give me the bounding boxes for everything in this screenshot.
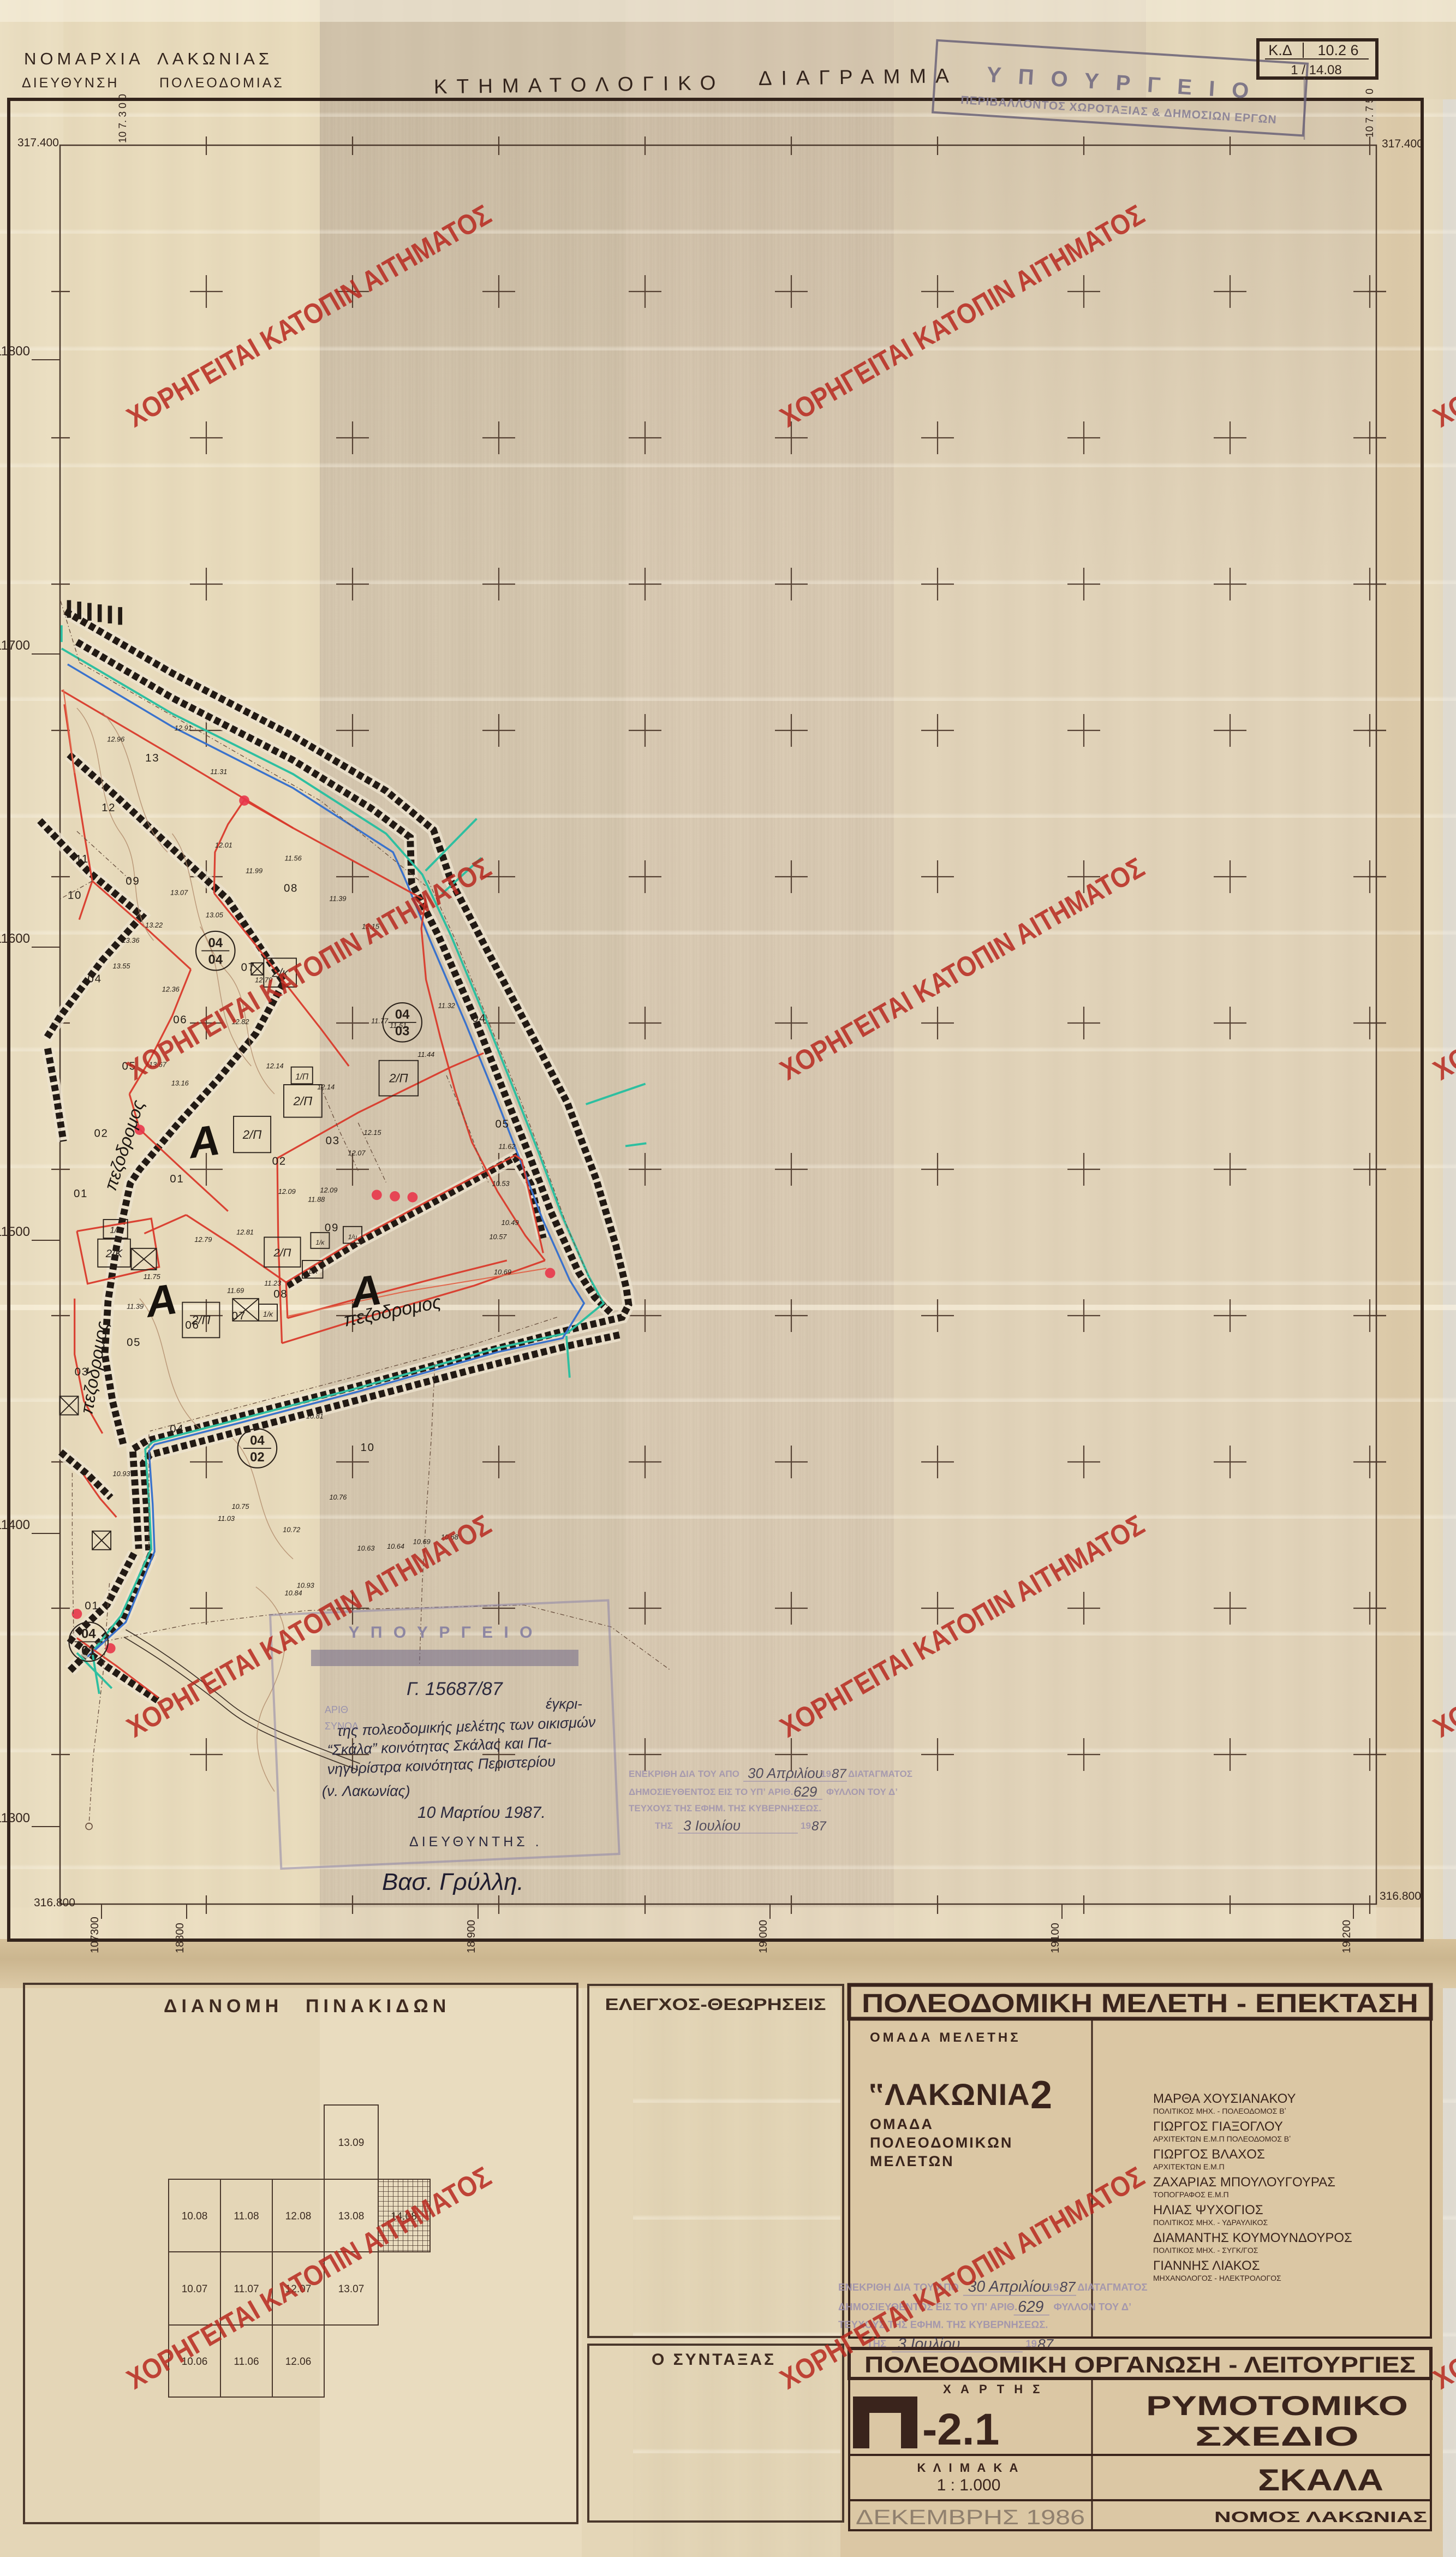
svg-text:ΕΝΕΚΡΙΘΗ ΔΙΑ ΤΟΥ ΑΠΟ: ΕΝΕΚΡΙΘΗ ΔΙΑ ΤΟΥ ΑΠΟ bbox=[629, 1769, 739, 1779]
svg-text:ΜΕΛΕΤΩΝ: ΜΕΛΕΤΩΝ bbox=[870, 2153, 954, 2169]
svg-text:ΠΟΛΙΤΙΚΟΣ ΜΗΧ. - ΣΥΓΚ/ΓΟΣ: ΠΟΛΙΤΙΚΟΣ ΜΗΧ. - ΣΥΓΚ/ΓΟΣ bbox=[1153, 2246, 1258, 2255]
svg-text:13.09: 13.09 bbox=[338, 2137, 365, 2149]
svg-text:11500: 11500 bbox=[0, 1224, 30, 1239]
svg-text:ΤΟΠΟΓΡΑΦΟΣ Ε.Μ.Π: ΤΟΠΟΓΡΑΦΟΣ Ε.Μ.Π bbox=[1153, 2190, 1229, 2199]
svg-text:10.2 6: 10.2 6 bbox=[1317, 42, 1358, 58]
svg-text:19: 19 bbox=[801, 1821, 811, 1831]
svg-text:10.75: 10.75 bbox=[232, 1502, 250, 1511]
svg-text:09: 09 bbox=[325, 1221, 339, 1234]
svg-text:ΑΡΙΘ: ΑΡΙΘ bbox=[325, 1704, 348, 1715]
svg-text:12.07: 12.07 bbox=[348, 1149, 366, 1157]
svg-text:87: 87 bbox=[811, 1819, 827, 1834]
svg-text:12.08: 12.08 bbox=[285, 2211, 312, 2222]
svg-text:12.09: 12.09 bbox=[278, 1187, 296, 1196]
svg-text:A: A bbox=[184, 1115, 223, 1167]
svg-text:13.07: 13.07 bbox=[170, 888, 188, 896]
svg-text:ΠΟΛΕΟΔΟΜΙΑΣ: ΠΟΛΕΟΔΟΜΙΑΣ bbox=[159, 75, 284, 91]
svg-text:ΓΙΩΡΓΟΣ ΒΛΑΧΟΣ: ΓΙΩΡΓΟΣ ΒΛΑΧΟΣ bbox=[1153, 2147, 1265, 2162]
svg-text:10.72: 10.72 bbox=[283, 1525, 300, 1533]
svg-text:08: 08 bbox=[284, 882, 298, 894]
svg-text:12.96: 12.96 bbox=[107, 735, 125, 743]
svg-text:19.200: 19.200 bbox=[1341, 1920, 1353, 1953]
svg-text:13: 13 bbox=[145, 752, 159, 764]
svg-text:Υ Π Ο Υ Ρ Γ Ε Ι Ο: Υ Π Ο Υ Ρ Γ Ε Ι Ο bbox=[349, 1624, 536, 1642]
svg-text:ΠΙΝΑΚΙΔΩΝ: ΠΙΝΑΚΙΔΩΝ bbox=[306, 1996, 450, 2017]
svg-text:3 Ιουλίου: 3 Ιουλίου bbox=[683, 1817, 741, 1834]
svg-text:11.51: 11.51 bbox=[390, 1021, 407, 1030]
svg-text:11.62: 11.62 bbox=[499, 1143, 516, 1151]
svg-text:01: 01 bbox=[170, 1173, 184, 1185]
svg-text:1/κ: 1/κ bbox=[110, 1226, 122, 1235]
svg-text:1/u: 1/u bbox=[348, 1233, 357, 1241]
svg-text:317.400: 317.400 bbox=[17, 136, 59, 149]
svg-text:07: 07 bbox=[232, 1310, 246, 1322]
svg-text:12.36: 12.36 bbox=[162, 985, 180, 994]
svg-text:10.08: 10.08 bbox=[182, 2211, 208, 2222]
svg-text:ΣΚΑΛΑ: ΣΚΑΛΑ bbox=[1258, 2463, 1383, 2497]
svg-text:10.63: 10.63 bbox=[357, 1544, 375, 1552]
svg-text:12.06: 12.06 bbox=[285, 2356, 312, 2368]
svg-text:ΛΑΚΩΝΙΑΣ: ΛΑΚΩΝΙΑΣ bbox=[157, 49, 273, 68]
svg-text:12.15: 12.15 bbox=[363, 1128, 381, 1137]
svg-text:10: 10 bbox=[361, 1441, 375, 1454]
svg-text:04: 04 bbox=[250, 1433, 265, 1448]
svg-text:10.76: 10.76 bbox=[329, 1493, 347, 1501]
svg-text:ΑΡΧΙΤΕΚΤΩΝ Ε.Μ.Π: ΑΡΧΙΤΕΚΤΩΝ Ε.Μ.Π bbox=[1153, 2162, 1225, 2171]
svg-text:της πολεοδομικής μελέτης των ο: της πολεοδομικής μελέτης των οικισμών bbox=[337, 1714, 596, 1739]
svg-text:08: 08 bbox=[273, 1288, 288, 1300]
svg-text:ΔΕΚΕΜΒΡΗΣ 1986: ΔΕΚΕΜΒΡΗΣ 1986 bbox=[856, 2506, 1085, 2529]
svg-text:11.23: 11.23 bbox=[264, 1279, 281, 1287]
svg-text:316.800: 316.800 bbox=[1380, 1890, 1421, 1902]
svg-text:13.05: 13.05 bbox=[206, 911, 224, 919]
svg-text:ΔΙΕΥΘΥΝΤΗΣ .: ΔΙΕΥΘΥΝΤΗΣ . bbox=[409, 1834, 542, 1850]
svg-text:10.53: 10.53 bbox=[492, 1180, 510, 1188]
svg-text:‟ΛΑΚΩΝΙΑ: ‟ΛΑΚΩΝΙΑ bbox=[869, 2077, 1030, 2112]
svg-text:13.55: 13.55 bbox=[113, 962, 131, 970]
svg-text:13.22: 13.22 bbox=[145, 921, 163, 929]
svg-text:04: 04 bbox=[170, 1423, 184, 1435]
svg-text:ΤΗΣ: ΤΗΣ bbox=[655, 1821, 673, 1831]
svg-text:107300: 107300 bbox=[89, 1917, 101, 1953]
svg-text:04: 04 bbox=[395, 1007, 410, 1022]
svg-text:02: 02 bbox=[272, 1155, 287, 1167]
svg-text:ΟΜΑΔΑ: ΟΜΑΔΑ bbox=[870, 2116, 934, 2132]
svg-text:11.88: 11.88 bbox=[308, 1196, 325, 1204]
svg-text:19.000: 19.000 bbox=[757, 1920, 769, 1953]
svg-text:04: 04 bbox=[208, 936, 223, 950]
svg-text:ΠΟΛΕΟΔΟΜΙΚΗ ΟΡΓΑΝΩΣΗ - ΛΕΙΤΟΥ: ΠΟΛΕΟΔΟΜΙΚΗ ΟΡΓΑΝΩΣΗ - ΛΕΙΤΟΥΡΓΙΕΣ bbox=[864, 2352, 1416, 2377]
svg-text:12.14: 12.14 bbox=[317, 1083, 335, 1091]
svg-text:2/Π: 2/Π bbox=[293, 1094, 313, 1108]
svg-text:12.01: 12.01 bbox=[215, 841, 232, 849]
svg-text:(ν. Λακωνίας): (ν. Λακωνίας) bbox=[322, 1783, 410, 1799]
svg-text:ΕΛΕΓΧΟΣ-ΘΕΩΡΗΣΕΙΣ: ΕΛΕΓΧΟΣ-ΘΕΩΡΗΣΕΙΣ bbox=[605, 1995, 826, 2014]
svg-text:ΤΕΥΧΟΥΣ ΤΗΣ ΕΦΗΜ. ΤΗΣ ΚΥΒΕ: ΤΕΥΧΟΥΣ ΤΗΣ ΕΦΗΜ. ΤΗΣ ΚΥΒΕΡΝΗΣΕΩΣ. bbox=[629, 1803, 821, 1813]
svg-text:30 Απριλίου: 30 Απριλίου bbox=[748, 1765, 823, 1781]
svg-text:ΠΟΛΕΟΔΟΜΙΚΩΝ: ΠΟΛΕΟΔΟΜΙΚΩΝ bbox=[870, 2134, 1013, 2151]
svg-text:10.49: 10.49 bbox=[502, 1218, 519, 1227]
svg-text:ΧΟΡΗΓΕΙΤΑΙ ΚΑΤΟΠΙΝ ΑΙΤΗΜΑΤΟΣ: ΧΟΡΗΓΕΙΤΑΙ ΚΑΤΟΠΙΝ ΑΙΤΗΜΑΤΟΣ bbox=[122, 852, 497, 1086]
svg-text:04: 04 bbox=[88, 973, 102, 985]
svg-text:12: 12 bbox=[102, 801, 116, 814]
svg-text:1/κ: 1/κ bbox=[263, 1310, 273, 1318]
svg-text:05: 05 bbox=[127, 1336, 141, 1349]
svg-text:629: 629 bbox=[1018, 2298, 1044, 2316]
svg-text:19: 19 bbox=[821, 1769, 831, 1779]
svg-text:11800: 11800 bbox=[0, 344, 30, 359]
svg-text:-2.1: -2.1 bbox=[922, 2405, 999, 2454]
svg-text:10.84: 10.84 bbox=[285, 1589, 302, 1597]
svg-text:12.91: 12.91 bbox=[175, 724, 192, 732]
svg-text:01: 01 bbox=[85, 1599, 99, 1612]
svg-text:10 7. 3 0 0: 10 7. 3 0 0 bbox=[117, 94, 129, 143]
svg-text:ΜΑΡΘΑ ΧΟΥΣΙΑΝΑΚΟΥ: ΜΑΡΘΑ ΧΟΥΣΙΑΝΑΚΟΥ bbox=[1153, 2091, 1296, 2106]
svg-text:11700: 11700 bbox=[0, 638, 30, 653]
svg-text:ΧΟΡΗΓΕΙΤΑΙ ΚΑΤΟΠΙΝ ΑΙΤΗΜΑΤΟΣ: ΧΟΡΗΓΕΙΤΑΙ ΚΑΤΟΠΙΝ ΑΙΤΗΜΑΤΟΣ bbox=[775, 852, 1150, 1086]
svg-text:Κ.Δ: Κ.Δ bbox=[1268, 42, 1292, 58]
svg-text:10: 10 bbox=[68, 889, 82, 901]
svg-text:01: 01 bbox=[81, 1643, 96, 1658]
svg-text:ΠΟΛΙΤΙΚΟΣ ΜΗΧ. - ΠΟΛΕΟΔΟΜΟΣ: ΠΟΛΙΤΙΚΟΣ ΜΗΧ. - ΠΟΛΕΟΔΟΜΟΣ Βʼ bbox=[1153, 2107, 1286, 2115]
svg-text:1/κ: 1/κ bbox=[315, 1239, 325, 1246]
svg-text:87: 87 bbox=[832, 1767, 847, 1781]
svg-text:05: 05 bbox=[496, 1117, 510, 1130]
svg-text:13.36: 13.36 bbox=[122, 936, 140, 944]
svg-text:12.09: 12.09 bbox=[320, 1186, 337, 1194]
svg-text:ΧΟΡΗΓΕΙΤΑΙ ΚΑΤΟΠΙΝ ΑΙΤΗΜΑΤΟΣ: ΧΟΡΗΓΕΙΤΑΙ ΚΑΤΟΠΙΝ ΑΙΤΗΜΑΤΟΣ bbox=[1428, 852, 1456, 1086]
svg-text:10.81: 10.81 bbox=[306, 1412, 324, 1420]
svg-text:ΝΟΜΑΡΧΙΑ: ΝΟΜΑΡΧΙΑ bbox=[24, 49, 144, 68]
svg-text:01: 01 bbox=[74, 1187, 88, 1200]
svg-text:10.93: 10.93 bbox=[113, 1470, 130, 1478]
svg-text:ΔΙΑΤΑΓΜΑΤΟΣ: ΔΙΑΤΑΓΜΑΤΟΣ bbox=[1077, 2281, 1147, 2293]
svg-text:18.900: 18.900 bbox=[466, 1920, 478, 1953]
svg-text:ΧΟΡΗΓΕΙΤΑΙ ΚΑΤΟΠΙΝ ΑΙΤΗΜΑΤΟΣ: ΧΟΡΗΓΕΙΤΑΙ ΚΑΤΟΠΙΝ ΑΙΤΗΜΑΤΟΣ bbox=[775, 199, 1150, 433]
svg-text:ΑΡΧΙΤΕΚΤΩΝ Ε.Μ.Π ΠΟΛΕΟΔΟΜ: ΑΡΧΙΤΕΚΤΩΝ Ε.Μ.Π ΠΟΛΕΟΔΟΜΟΣ Βʼ bbox=[1153, 2134, 1291, 2143]
svg-text:ΧΟΡΗΓΕΙΤΑΙ ΚΑΤΟΠΙΝ ΑΙΤΗΜΑΤΟΣ: ΧΟΡΗΓΕΙΤΑΙ ΚΑΤΟΠΙΝ ΑΙΤΗΜΑΤΟΣ bbox=[1428, 1509, 1456, 1744]
svg-text:11.69: 11.69 bbox=[227, 1287, 244, 1295]
svg-text:316.800: 316.800 bbox=[34, 1896, 75, 1909]
svg-text:11.44: 11.44 bbox=[417, 1050, 434, 1059]
svg-text:1/Π: 1/Π bbox=[295, 1073, 309, 1082]
svg-text:13.08: 13.08 bbox=[338, 2211, 365, 2222]
svg-text:04: 04 bbox=[81, 1627, 96, 1642]
svg-text:09: 09 bbox=[126, 875, 140, 888]
svg-text:11.03: 11.03 bbox=[218, 1514, 235, 1523]
svg-text:Γ. 15687/87: Γ. 15687/87 bbox=[407, 1679, 503, 1699]
svg-text:11.39: 11.39 bbox=[127, 1303, 144, 1311]
svg-text:ΝΟΜΟΣ ΛΑΚΩΝΙΑΣ: ΝΟΜΟΣ ΛΑΚΩΝΙΑΣ bbox=[1214, 2508, 1427, 2525]
svg-text:ΟΜΑΔΑ ΜΕΛΕΤΗΣ: ΟΜΑΔΑ ΜΕΛΕΤΗΣ bbox=[870, 2030, 1021, 2045]
svg-text:11.75: 11.75 bbox=[144, 1272, 161, 1281]
svg-text:11.31: 11.31 bbox=[210, 768, 227, 776]
svg-text:18800: 18800 bbox=[174, 1923, 186, 1953]
svg-text:13.07: 13.07 bbox=[338, 2284, 365, 2295]
svg-text:ΦΥΛΛΟΝ ΤΟΥ Δʼ: ΦΥΛΛΟΝ ΤΟΥ Δʼ bbox=[826, 1787, 898, 1797]
svg-text:02: 02 bbox=[250, 1450, 265, 1465]
svg-text:10.64: 10.64 bbox=[387, 1542, 404, 1550]
svg-text:11.56: 11.56 bbox=[285, 854, 302, 862]
svg-text:ΜΗΧΑΝΟΛΟΓΟΣ - ΗΛΕΚΤΡΟΛΟΓΟΣ: ΜΗΧΑΝΟΛΟΓΟΣ - ΗΛΕΚΤΡΟΛΟΓΟΣ bbox=[1153, 2274, 1281, 2282]
svg-text:07: 07 bbox=[241, 961, 255, 973]
svg-text:629: 629 bbox=[793, 1783, 817, 1800]
svg-text:11.39: 11.39 bbox=[329, 895, 346, 903]
svg-text:03: 03 bbox=[326, 1134, 340, 1147]
svg-text:ΖΑΧΑΡΙΑΣ ΜΠΟΥΛΟΥΓΟΥΡΑΣ: ΖΑΧΑΡΙΑΣ ΜΠΟΥΛΟΥΓΟΥΡΑΣ bbox=[1153, 2175, 1335, 2190]
svg-text:11400: 11400 bbox=[0, 1518, 30, 1532]
svg-text:11.77: 11.77 bbox=[371, 1017, 389, 1025]
svg-text:13.16: 13.16 bbox=[171, 1079, 189, 1087]
svg-text:11.32: 11.32 bbox=[438, 1001, 455, 1009]
svg-text:1 / 14.08: 1 / 14.08 bbox=[1291, 63, 1341, 78]
svg-text:10 Μαρτίου 1987.: 10 Μαρτίου 1987. bbox=[417, 1804, 546, 1822]
svg-text:317.400: 317.400 bbox=[1382, 138, 1423, 150]
svg-text:04: 04 bbox=[472, 1012, 486, 1025]
svg-text:03: 03 bbox=[75, 1365, 89, 1378]
svg-text:ΔΙΑΝΟΜΗ: ΔΙΑΝΟΜΗ bbox=[164, 1996, 283, 2017]
svg-text:19100: 19100 bbox=[1049, 1923, 1061, 1953]
svg-text:ΣΧΕΔΙΟ: ΣΧΕΔΙΟ bbox=[1195, 2421, 1359, 2452]
svg-text:2/Κ: 2/Κ bbox=[105, 1247, 123, 1260]
svg-text:11.99: 11.99 bbox=[246, 866, 262, 875]
svg-text:ΧΟΡΗΓΕΙΤΑΙ ΚΑΤΟΠΙΝ ΑΙΤΗΜΑΤΟΣ: ΧΟΡΗΓΕΙΤΑΙ ΚΑΤΟΠΙΝ ΑΙΤΗΜΑΤΟΣ bbox=[1428, 199, 1456, 433]
svg-text:2: 2 bbox=[1030, 2073, 1052, 2117]
svg-text:Κ Λ Ι Μ Α Κ Α: Κ Λ Ι Μ Α Κ Α bbox=[917, 2461, 1021, 2475]
svg-text:11.08: 11.08 bbox=[234, 2211, 259, 2222]
svg-text:12.14: 12.14 bbox=[266, 1062, 284, 1070]
svg-text:ΔΗΜΟΣΙΕΥΘΕΝΤΟΣ ΕΙΣ ΤΟ ΥΠʼ Α: ΔΗΜΟΣΙΕΥΘΕΝΤΟΣ ΕΙΣ ΤΟ ΥΠʼ ΑΡΙΘ. bbox=[629, 1787, 793, 1797]
svg-text:ΔΙΑΜΑΝΤΗΣ ΚΟΥΜΟΥΝΔΟΥΡΟΣ: ΔΙΑΜΑΝΤΗΣ ΚΟΥΜΟΥΝΔΟΥΡΟΣ bbox=[1153, 2231, 1352, 2245]
svg-text:ΓΙΑΝΝΗΣ ΛΙΑΚΟΣ: ΓΙΑΝΝΗΣ ΛΙΑΚΟΣ bbox=[1153, 2258, 1260, 2273]
svg-text:19: 19 bbox=[1048, 2281, 1059, 2293]
svg-text:11600: 11600 bbox=[0, 931, 30, 946]
svg-text:10.93: 10.93 bbox=[297, 1581, 314, 1590]
svg-text:ΧΟΡΗΓΕΙΤΑΙ ΚΑΤΟΠΙΝ ΑΙΤΗΜΑΤΟΣ: ΧΟΡΗΓΕΙΤΑΙ ΚΑΤΟΠΙΝ ΑΙΤΗΜΑΤΟΣ bbox=[122, 199, 497, 433]
svg-text:3 Ιουλίου: 3 Ιουλίου bbox=[898, 2335, 960, 2353]
svg-text:2/Π: 2/Π bbox=[273, 1246, 291, 1259]
svg-text:Χ Α Ρ Τ Η Σ: Χ Α Ρ Τ Η Σ bbox=[943, 2382, 1043, 2396]
svg-text:1/κ: 1/κ bbox=[308, 1267, 318, 1275]
svg-text:ΔΙΑΤΑΓΜΑΤΟΣ: ΔΙΑΤΑΓΜΑΤΟΣ bbox=[848, 1769, 912, 1779]
svg-text:04: 04 bbox=[208, 953, 223, 967]
svg-text:ΠΟΛΙΤΙΚΟΣ ΜΗΧ. - ΥΔΡΑΥΛΙΚΟΣ: ΠΟΛΙΤΙΚΟΣ ΜΗΧ. - ΥΔΡΑΥΛΙΚΟΣ bbox=[1153, 2218, 1268, 2227]
svg-text:Υ Π Ο Υ Ρ Γ Ε Ι Ο: Υ Π Ο Υ Ρ Γ Ε Ι Ο bbox=[986, 63, 1255, 104]
svg-text:ΧΟΡΗΓΕΙΤΑΙ ΚΑΤΟΠΙΝ ΑΙΤΗΜΑΤΟΣ: ΧΟΡΗΓΕΙΤΑΙ ΚΑΤΟΠΙΝ ΑΙΤΗΜΑΤΟΣ bbox=[775, 1509, 1150, 1744]
svg-text:ΚΤΗΜΑΤΟΛΟΓΙΚΟ: ΚΤΗΜΑΤΟΛΟΓΙΚΟ bbox=[434, 72, 725, 98]
svg-text:1 : 1.000: 1 : 1.000 bbox=[937, 2476, 1001, 2494]
svg-text:10.69: 10.69 bbox=[494, 1268, 511, 1276]
svg-text:10.57: 10.57 bbox=[489, 1233, 507, 1241]
svg-text:2/Π: 2/Π bbox=[389, 1072, 408, 1085]
svg-text:11300: 11300 bbox=[0, 1811, 30, 1825]
svg-text:έγκρι-: έγκρι- bbox=[546, 1696, 582, 1712]
svg-text:12.79: 12.79 bbox=[194, 1235, 212, 1244]
svg-text:ΡΥΜΟΤΟΜΙΚΟ: ΡΥΜΟΤΟΜΙΚΟ bbox=[1146, 2391, 1408, 2421]
svg-text:ΗΛΙΑΣ ΨΥΧΟΓΙΟΣ: ΗΛΙΑΣ ΨΥΧΟΓΙΟΣ bbox=[1153, 2203, 1263, 2217]
svg-text:06: 06 bbox=[185, 1319, 199, 1331]
svg-text:Ο ΣΥΝΤΑΞΑΣ: Ο ΣΥΝΤΑΞΑΣ bbox=[652, 2351, 776, 2369]
svg-text:ΦΥΛΛΟΝ ΤΟΥ Δʼ: ΦΥΛΛΟΝ ΤΟΥ Δʼ bbox=[1054, 2301, 1132, 2312]
svg-text:2/Π: 2/Π bbox=[242, 1128, 262, 1141]
svg-text:11.06: 11.06 bbox=[234, 2356, 259, 2368]
svg-text:11: 11 bbox=[75, 853, 89, 865]
svg-text:10.07: 10.07 bbox=[182, 2284, 208, 2295]
svg-text:A: A bbox=[141, 1275, 180, 1327]
svg-text:87: 87 bbox=[1059, 2279, 1076, 2295]
svg-text:10 7. 7 5 0: 10 7. 7 5 0 bbox=[1364, 88, 1376, 138]
svg-text:ΔΙΕΥΘΥΝΣΗ: ΔΙΕΥΘΥΝΣΗ bbox=[22, 75, 119, 91]
svg-text:Βασ. Γρύλλη.: Βασ. Γρύλλη. bbox=[382, 1869, 524, 1895]
svg-text:02: 02 bbox=[94, 1127, 108, 1139]
svg-text:ΔΙΑΓΡΑΜΜΑ: ΔΙΑΓΡΑΜΜΑ bbox=[758, 64, 958, 90]
svg-text:ΓΙΩΡΓΟΣ ΓΙΑΞΟΓΛΟΥ: ΓΙΩΡΓΟΣ ΓΙΑΞΟΓΛΟΥ bbox=[1153, 2119, 1283, 2134]
svg-text:ΠΟΛΕΟΔΟΜΙΚΗ ΜΕΛΕΤΗ - ΕΠΕΚΤΑΣΗ: ΠΟΛΕΟΔΟΜΙΚΗ ΜΕΛΕΤΗ - ΕΠΕΚΤΑΣΗ bbox=[862, 1989, 1418, 2018]
svg-text:12.81: 12.81 bbox=[236, 1228, 254, 1236]
